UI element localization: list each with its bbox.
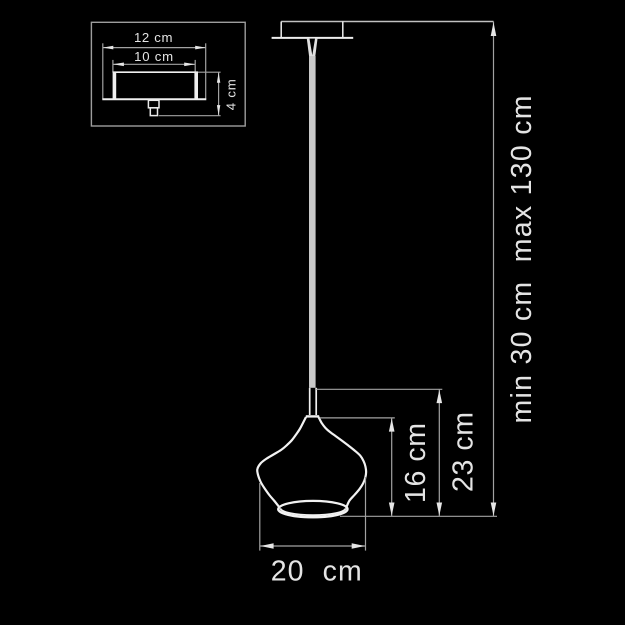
svg-text:20 cm: 20 cm	[271, 556, 362, 588]
svg-text:10 cm: 10 cm	[134, 49, 173, 64]
svg-text:16 cm: 16 cm	[400, 423, 432, 503]
svg-text:min 30 cm max 130 cm: min 30 cm max 130 cm	[506, 96, 538, 424]
svg-text:23 cm: 23 cm	[447, 412, 479, 492]
svg-text:4 cm: 4 cm	[224, 79, 239, 110]
svg-text:12 cm: 12 cm	[134, 30, 173, 45]
